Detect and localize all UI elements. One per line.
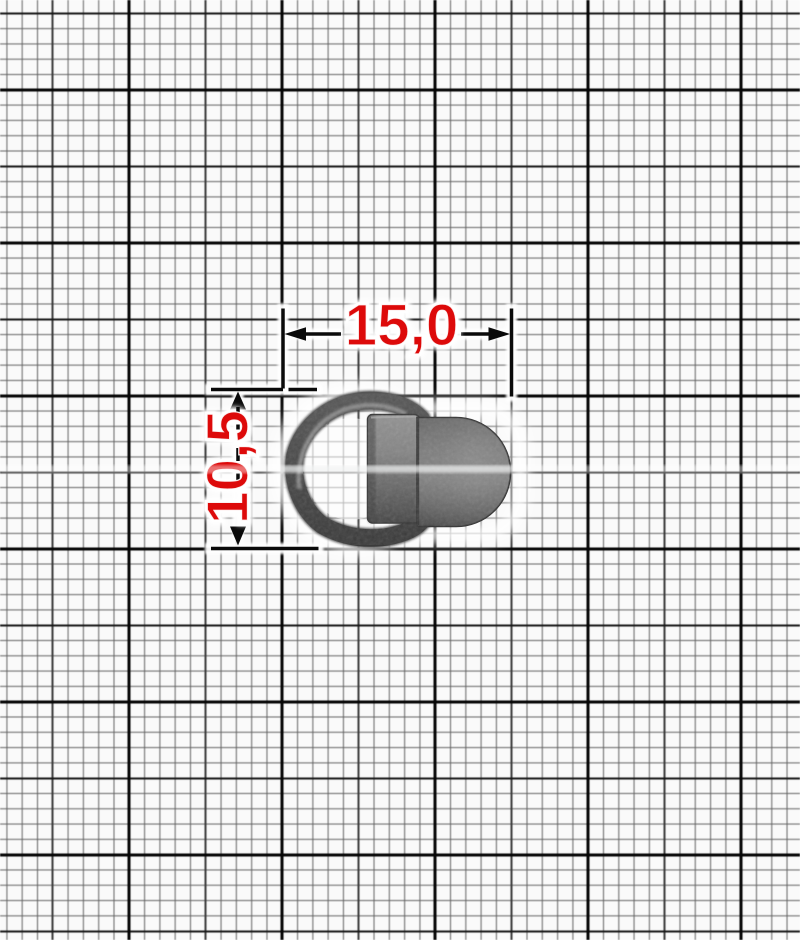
svg-text:15,0: 15,0 <box>345 293 459 358</box>
